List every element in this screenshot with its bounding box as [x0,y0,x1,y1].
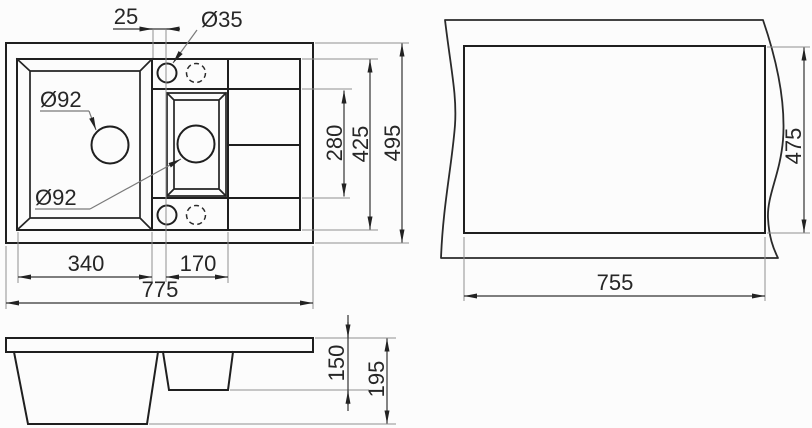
dim-text-faucet-offset: 25 [114,4,138,29]
leader-main-drain [89,111,96,130]
side-rim-slab [6,338,313,352]
dim-text-170: 170 [180,251,217,276]
dim-text-340: 340 [68,251,105,276]
dim-text-main-drain-dia: Ø92 [40,87,82,112]
dim-text-280: 280 [322,125,347,162]
side-view: 150 195 [6,315,396,424]
small-bowl-drain-hole [178,126,215,163]
dim-text-475: 475 [781,128,806,165]
dim-text-755: 755 [597,270,634,295]
faucet-hole-bottom [158,206,177,225]
main-bowl-drain-hole [92,127,129,164]
plan-view: 25 Ø35 Ø92 Ø92 280 425 495 340 170 775 [6,4,409,309]
faucet-hole-top-optional [187,64,206,83]
countertop-panel [441,20,783,258]
plan-outline [6,43,313,243]
cutout-rect [464,46,765,233]
dim-text-faucet-dia: Ø35 [201,7,243,32]
sink-dimension-drawing: 25 Ø35 Ø92 Ø92 280 425 495 340 170 775 4… [0,0,812,428]
side-bowls [14,352,233,424]
technical-drawing-page: 25 Ø35 Ø92 Ø92 280 425 495 340 170 775 4… [0,0,812,428]
faucet-hole-top [158,64,177,83]
dim-text-425: 425 [348,126,373,163]
dim-text-775: 775 [142,277,179,302]
dim-text-150: 150 [324,345,349,382]
dim-text-495: 495 [380,125,405,162]
dim-text-195: 195 [364,361,389,398]
faucet-hole-bottom-optional [187,206,206,225]
cutout-view: 475 755 [441,20,810,301]
dim-text-small-drain-dia: Ø92 [35,185,77,210]
cutout-extension-lines [464,47,810,301]
side-extension-lines [149,338,396,424]
